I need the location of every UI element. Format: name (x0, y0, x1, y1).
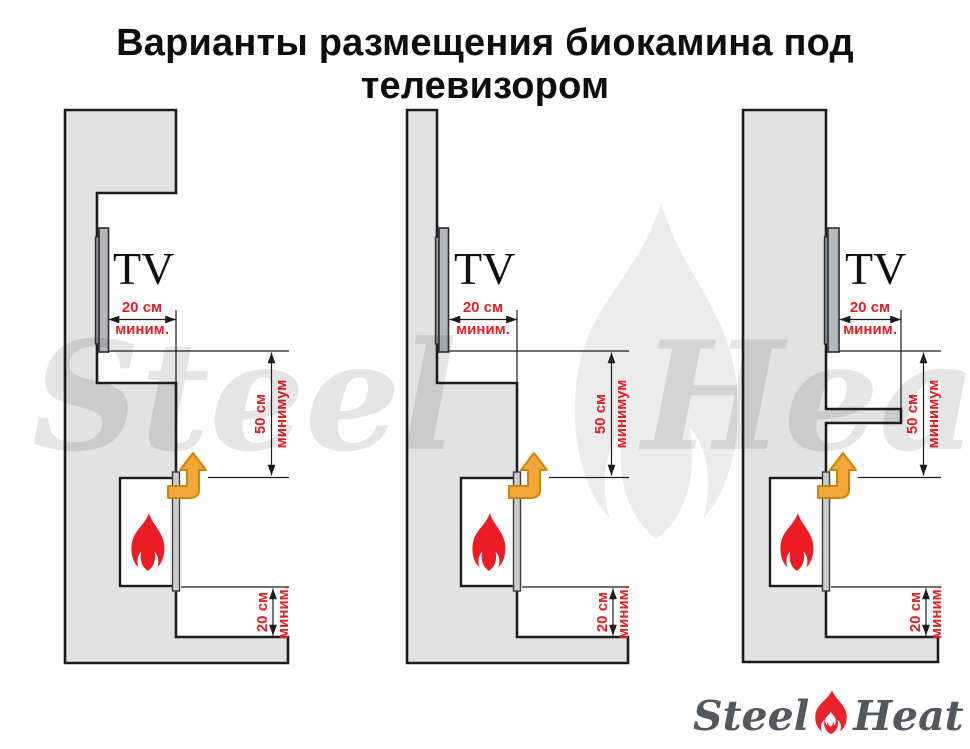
infographic-canvas: Варианты размещения биокамина под телеви… (0, 0, 970, 749)
top-clearance-qualifier: миним. (451, 322, 515, 338)
top-clearance-value: 20 см (451, 300, 515, 316)
vertical-clearance-qualifier: минимум (274, 354, 290, 474)
logo-steel-text: Steel (693, 696, 809, 737)
top-clearance-qualifier: миним. (110, 322, 174, 338)
bottom-clearance-value: 20 см (595, 552, 611, 672)
tv-panel (99, 228, 109, 352)
tv-label: TV (845, 246, 906, 292)
top-clearance-value: 20 см (838, 300, 902, 316)
logo-heat-text: Heat (853, 696, 963, 737)
bottom-clearance-qualifier: миним. (616, 552, 632, 672)
vertical-clearance-value: 50 см (905, 354, 921, 474)
tv-label: TV (113, 246, 174, 292)
bottom-clearance-value: 20 см (908, 552, 924, 672)
bottom-clearance-qualifier: миним. (929, 552, 945, 672)
logo-flame-icon (811, 688, 851, 744)
bottom-clearance-value: 20 см (255, 552, 271, 672)
vertical-clearance-value: 50 см (253, 354, 269, 474)
top-clearance-qualifier: миним. (838, 322, 902, 338)
bottom-clearance-qualifier: миним. (276, 552, 292, 672)
vertical-clearance-qualifier: минимум (926, 354, 942, 474)
vertical-clearance-qualifier: минимум (614, 354, 630, 474)
logo: Steel Heat (693, 688, 964, 744)
vertical-clearance-value: 50 см (593, 354, 609, 474)
tv-panel (439, 228, 449, 352)
diagram-linework (0, 0, 970, 749)
tv-label: TV (454, 246, 515, 292)
top-clearance-value: 20 см (110, 300, 174, 316)
